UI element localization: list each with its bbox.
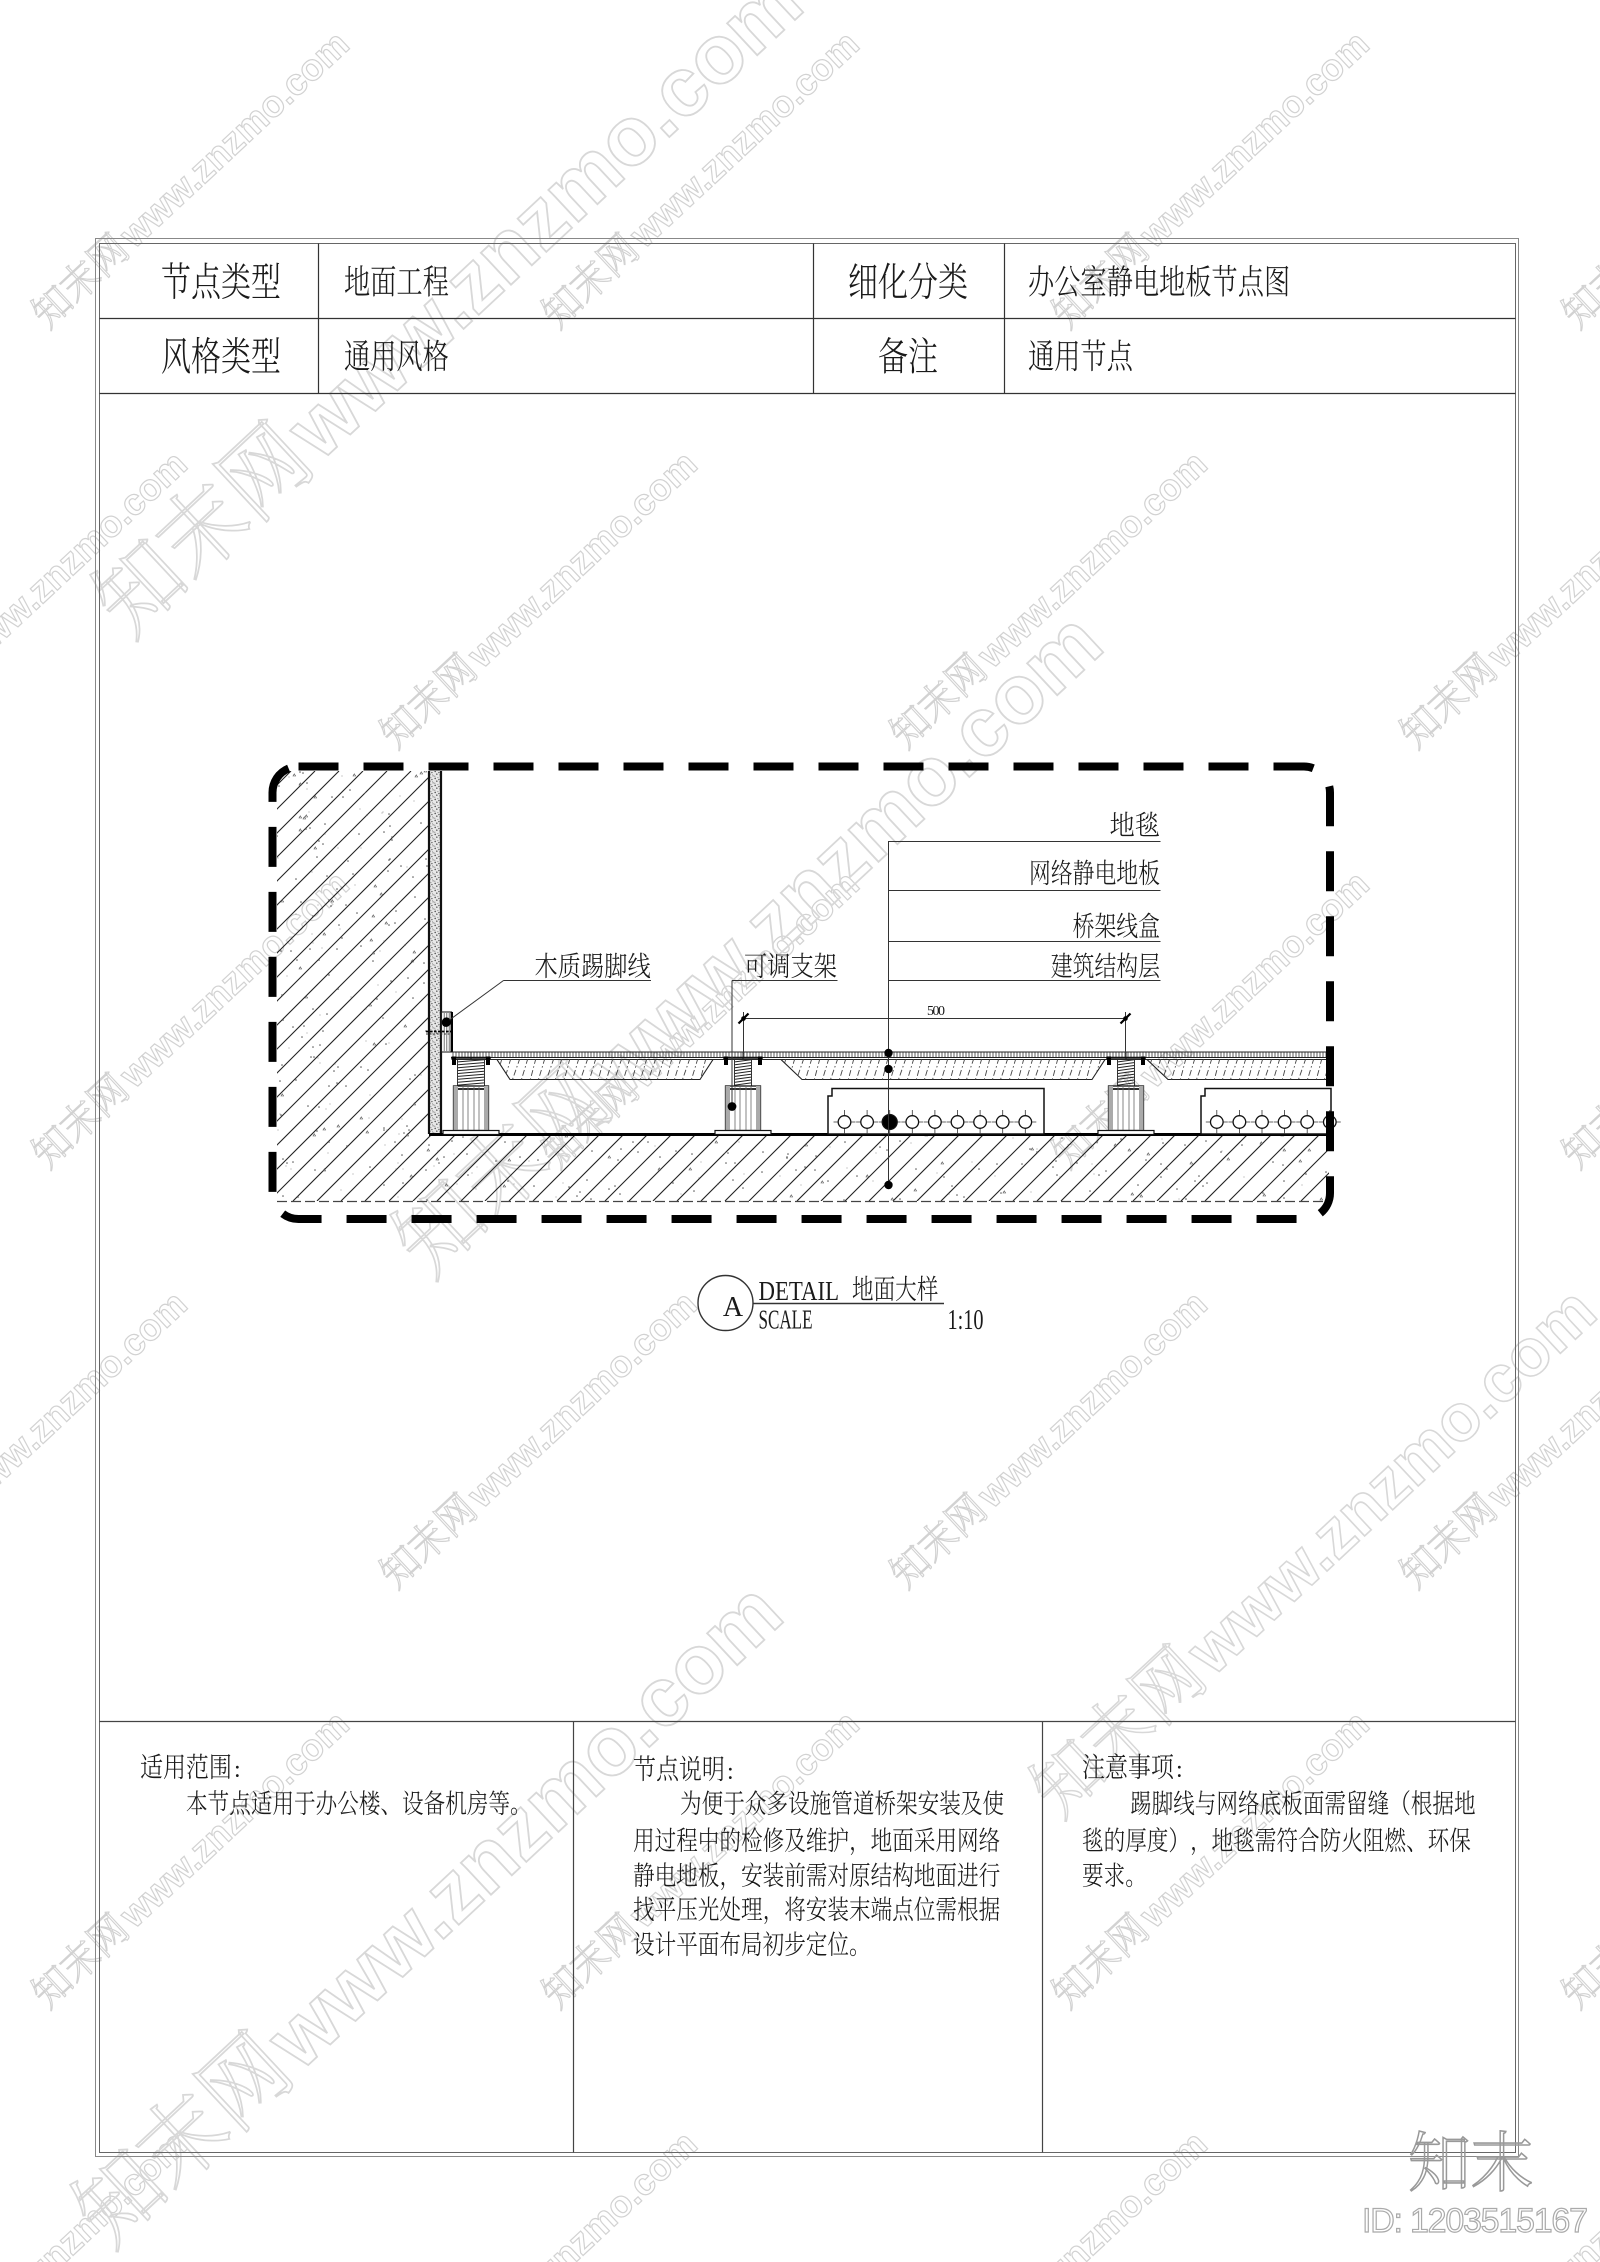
svg-text::: : bbox=[1176, 1757, 1183, 1783]
svg-text::: : bbox=[234, 1757, 241, 1783]
svg-text:500: 500 bbox=[927, 1004, 945, 1019]
svg-text:ID: 1203515167: ID: 1203515167 bbox=[1362, 2202, 1588, 2240]
svg-text:SCALE: SCALE bbox=[759, 1305, 813, 1335]
svg-text:1:10: 1:10 bbox=[948, 1305, 984, 1336]
svg-text:A: A bbox=[723, 1292, 744, 1323]
svg-text::: : bbox=[727, 1759, 734, 1785]
svg-text:DETAIL: DETAIL bbox=[759, 1276, 840, 1306]
